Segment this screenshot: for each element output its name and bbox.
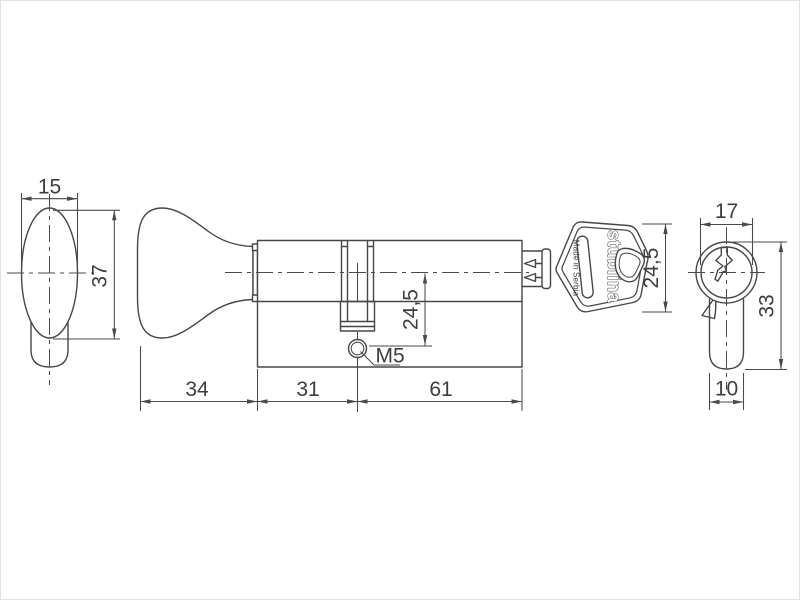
profile-end-view: 17 33 10 — [688, 200, 787, 410]
dim-label-33: 33 — [756, 294, 779, 317]
thumbturn-end-view: 15 37 — [7, 176, 120, 386]
key: Made in Serbia stublina 24,5 — [522, 222, 672, 312]
main-side-view: M5 24,5 34 31 61 — [138, 208, 530, 412]
key-teeth — [525, 260, 544, 282]
key-tooth — [525, 274, 536, 282]
dim-key-head: 24,5 — [640, 224, 672, 312]
dim-label-24-5-key: 24,5 — [640, 248, 663, 289]
screw-hole: M5 — [349, 332, 405, 412]
dim-label-37: 37 — [89, 264, 112, 287]
key-origin-text: Made in Serbia — [572, 240, 581, 297]
technical-drawing-page: 15 37 — [0, 0, 800, 600]
dim-profile-width: 10 — [710, 373, 744, 410]
dim-label-61: 61 — [429, 378, 452, 401]
dim-label-17: 17 — [715, 200, 738, 223]
dim-label-34: 34 — [185, 378, 209, 401]
dim-label-15: 15 — [38, 176, 61, 199]
key-tooth — [525, 260, 536, 268]
label-m5: M5 — [376, 345, 405, 368]
cylinder-lock-drawing: 15 37 — [1, 1, 799, 599]
dim-label-24-5: 24,5 — [400, 289, 423, 330]
key-shoulder — [542, 249, 551, 289]
dim-label-10: 10 — [715, 378, 738, 401]
dim-label-31: 31 — [296, 378, 319, 401]
